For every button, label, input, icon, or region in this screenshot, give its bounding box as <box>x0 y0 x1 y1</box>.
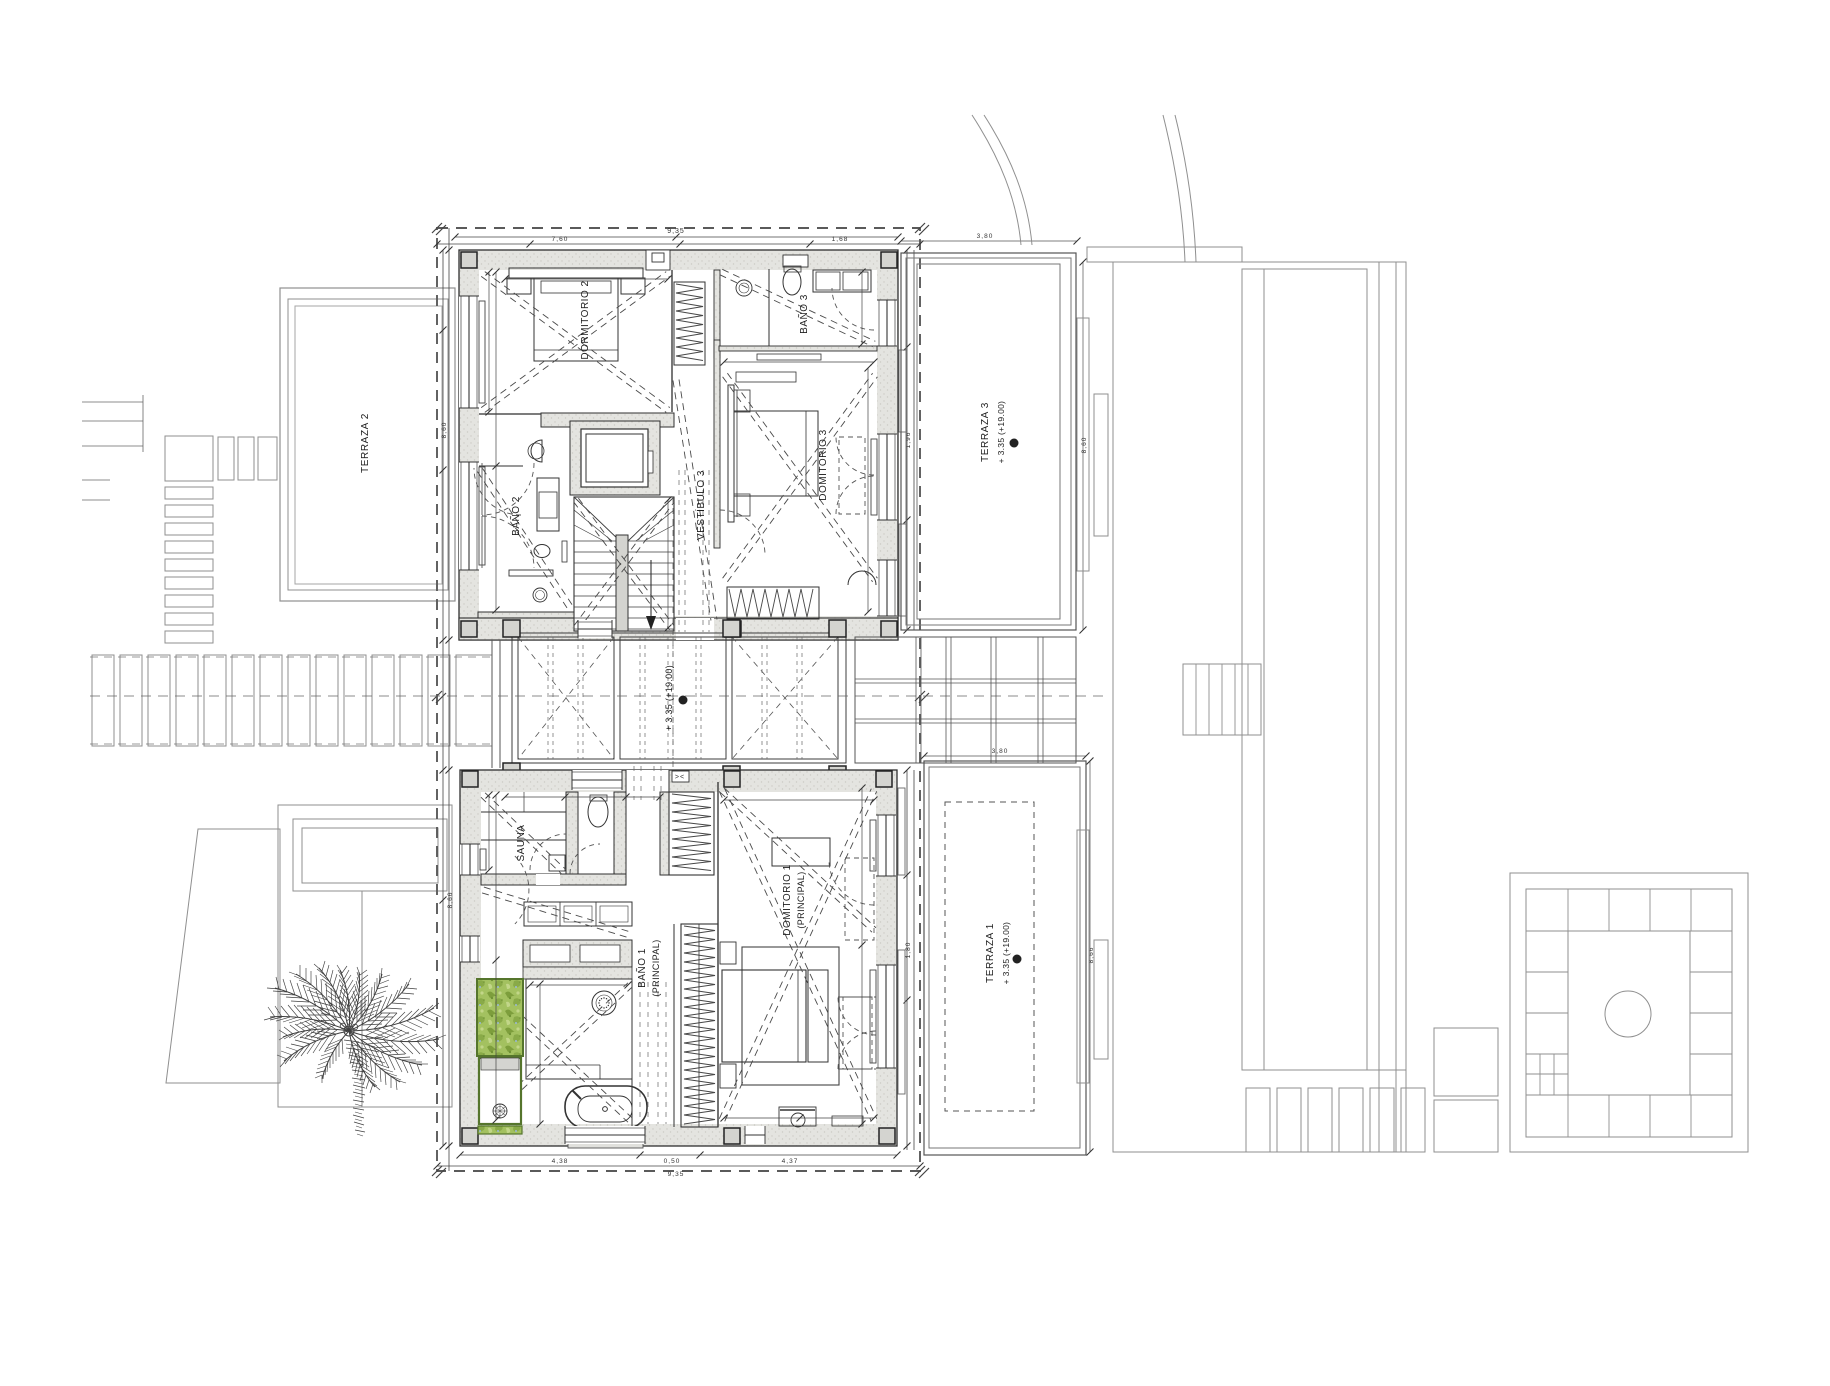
svg-text:4,37: 4,37 <box>782 1158 799 1165</box>
svg-text:8,60: 8,60 <box>441 422 448 439</box>
svg-text:VESTÍBULO 3: VESTÍBULO 3 <box>694 470 707 540</box>
svg-text:3,80: 3,80 <box>977 233 994 240</box>
svg-text:7,60: 7,60 <box>552 236 569 243</box>
svg-text:4,38: 4,38 <box>552 1158 569 1165</box>
svg-text:BAÑO 1: BAÑO 1 <box>635 948 648 988</box>
svg-text:+ 3.35 (+19.00): + 3.35 (+19.00) <box>664 665 674 731</box>
svg-text:8,60: 8,60 <box>1081 437 1088 454</box>
svg-text:DOMITORIO 3: DOMITORIO 3 <box>818 429 829 500</box>
svg-text:9,35: 9,35 <box>667 228 685 235</box>
svg-text:3,80: 3,80 <box>992 748 1009 755</box>
svg-text:+ 3.35 (+19.00): + 3.35 (+19.00) <box>1001 922 1011 985</box>
svg-text:DOMITORIO 1: DOMITORIO 1 <box>782 864 793 935</box>
svg-text:0,50: 0,50 <box>664 1158 681 1165</box>
svg-text:BAÑO 3: BAÑO 3 <box>797 294 810 334</box>
svg-text:TERRAZA 1: TERRAZA 1 <box>985 923 996 983</box>
svg-text:SAUNA: SAUNA <box>516 825 527 862</box>
svg-text:9,35: 9,35 <box>668 1171 685 1178</box>
svg-text:TERRAZA 3: TERRAZA 3 <box>980 402 991 462</box>
svg-text:+ 3.35 (+19.00): + 3.35 (+19.00) <box>996 401 1006 464</box>
svg-text:><: >< <box>675 774 685 781</box>
svg-text:TERRAZA 2: TERRAZA 2 <box>360 413 371 473</box>
svg-text:BAÑO 2: BAÑO 2 <box>509 496 522 536</box>
svg-text:1,68: 1,68 <box>832 236 849 243</box>
svg-text:DORMITORIO 2: DORMITORIO 2 <box>580 280 591 359</box>
svg-text:1,80: 1,80 <box>905 942 912 959</box>
svg-text:(PRINCIPAL): (PRINCIPAL) <box>651 939 661 996</box>
svg-text:8,66: 8,66 <box>447 892 454 909</box>
svg-text:(PRINCIPAL): (PRINCIPAL) <box>796 871 806 928</box>
